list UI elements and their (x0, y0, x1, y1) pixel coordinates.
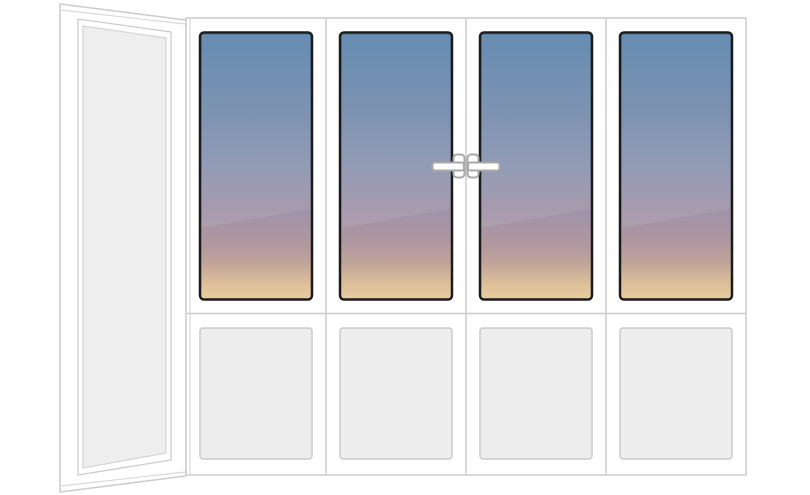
window-handle-left-bar (433, 163, 465, 171)
balcony-glazing-drawing (0, 0, 810, 495)
glass-sash-3-sheen (482, 35, 590, 228)
balcony-glazing-diagram (0, 0, 810, 495)
window-handle-right-bar (468, 163, 500, 171)
bottom-panel-3 (480, 328, 592, 459)
glass-sash-2-sheen (342, 35, 450, 228)
bottom-panel-4 (620, 328, 732, 459)
bottom-panel-1 (200, 328, 312, 459)
glass-sash-1-sheen (202, 35, 310, 228)
glass-sash-4-sheen (622, 35, 730, 228)
bottom-panel-2 (340, 328, 452, 459)
side-panel-opaque-infill (83, 26, 166, 468)
